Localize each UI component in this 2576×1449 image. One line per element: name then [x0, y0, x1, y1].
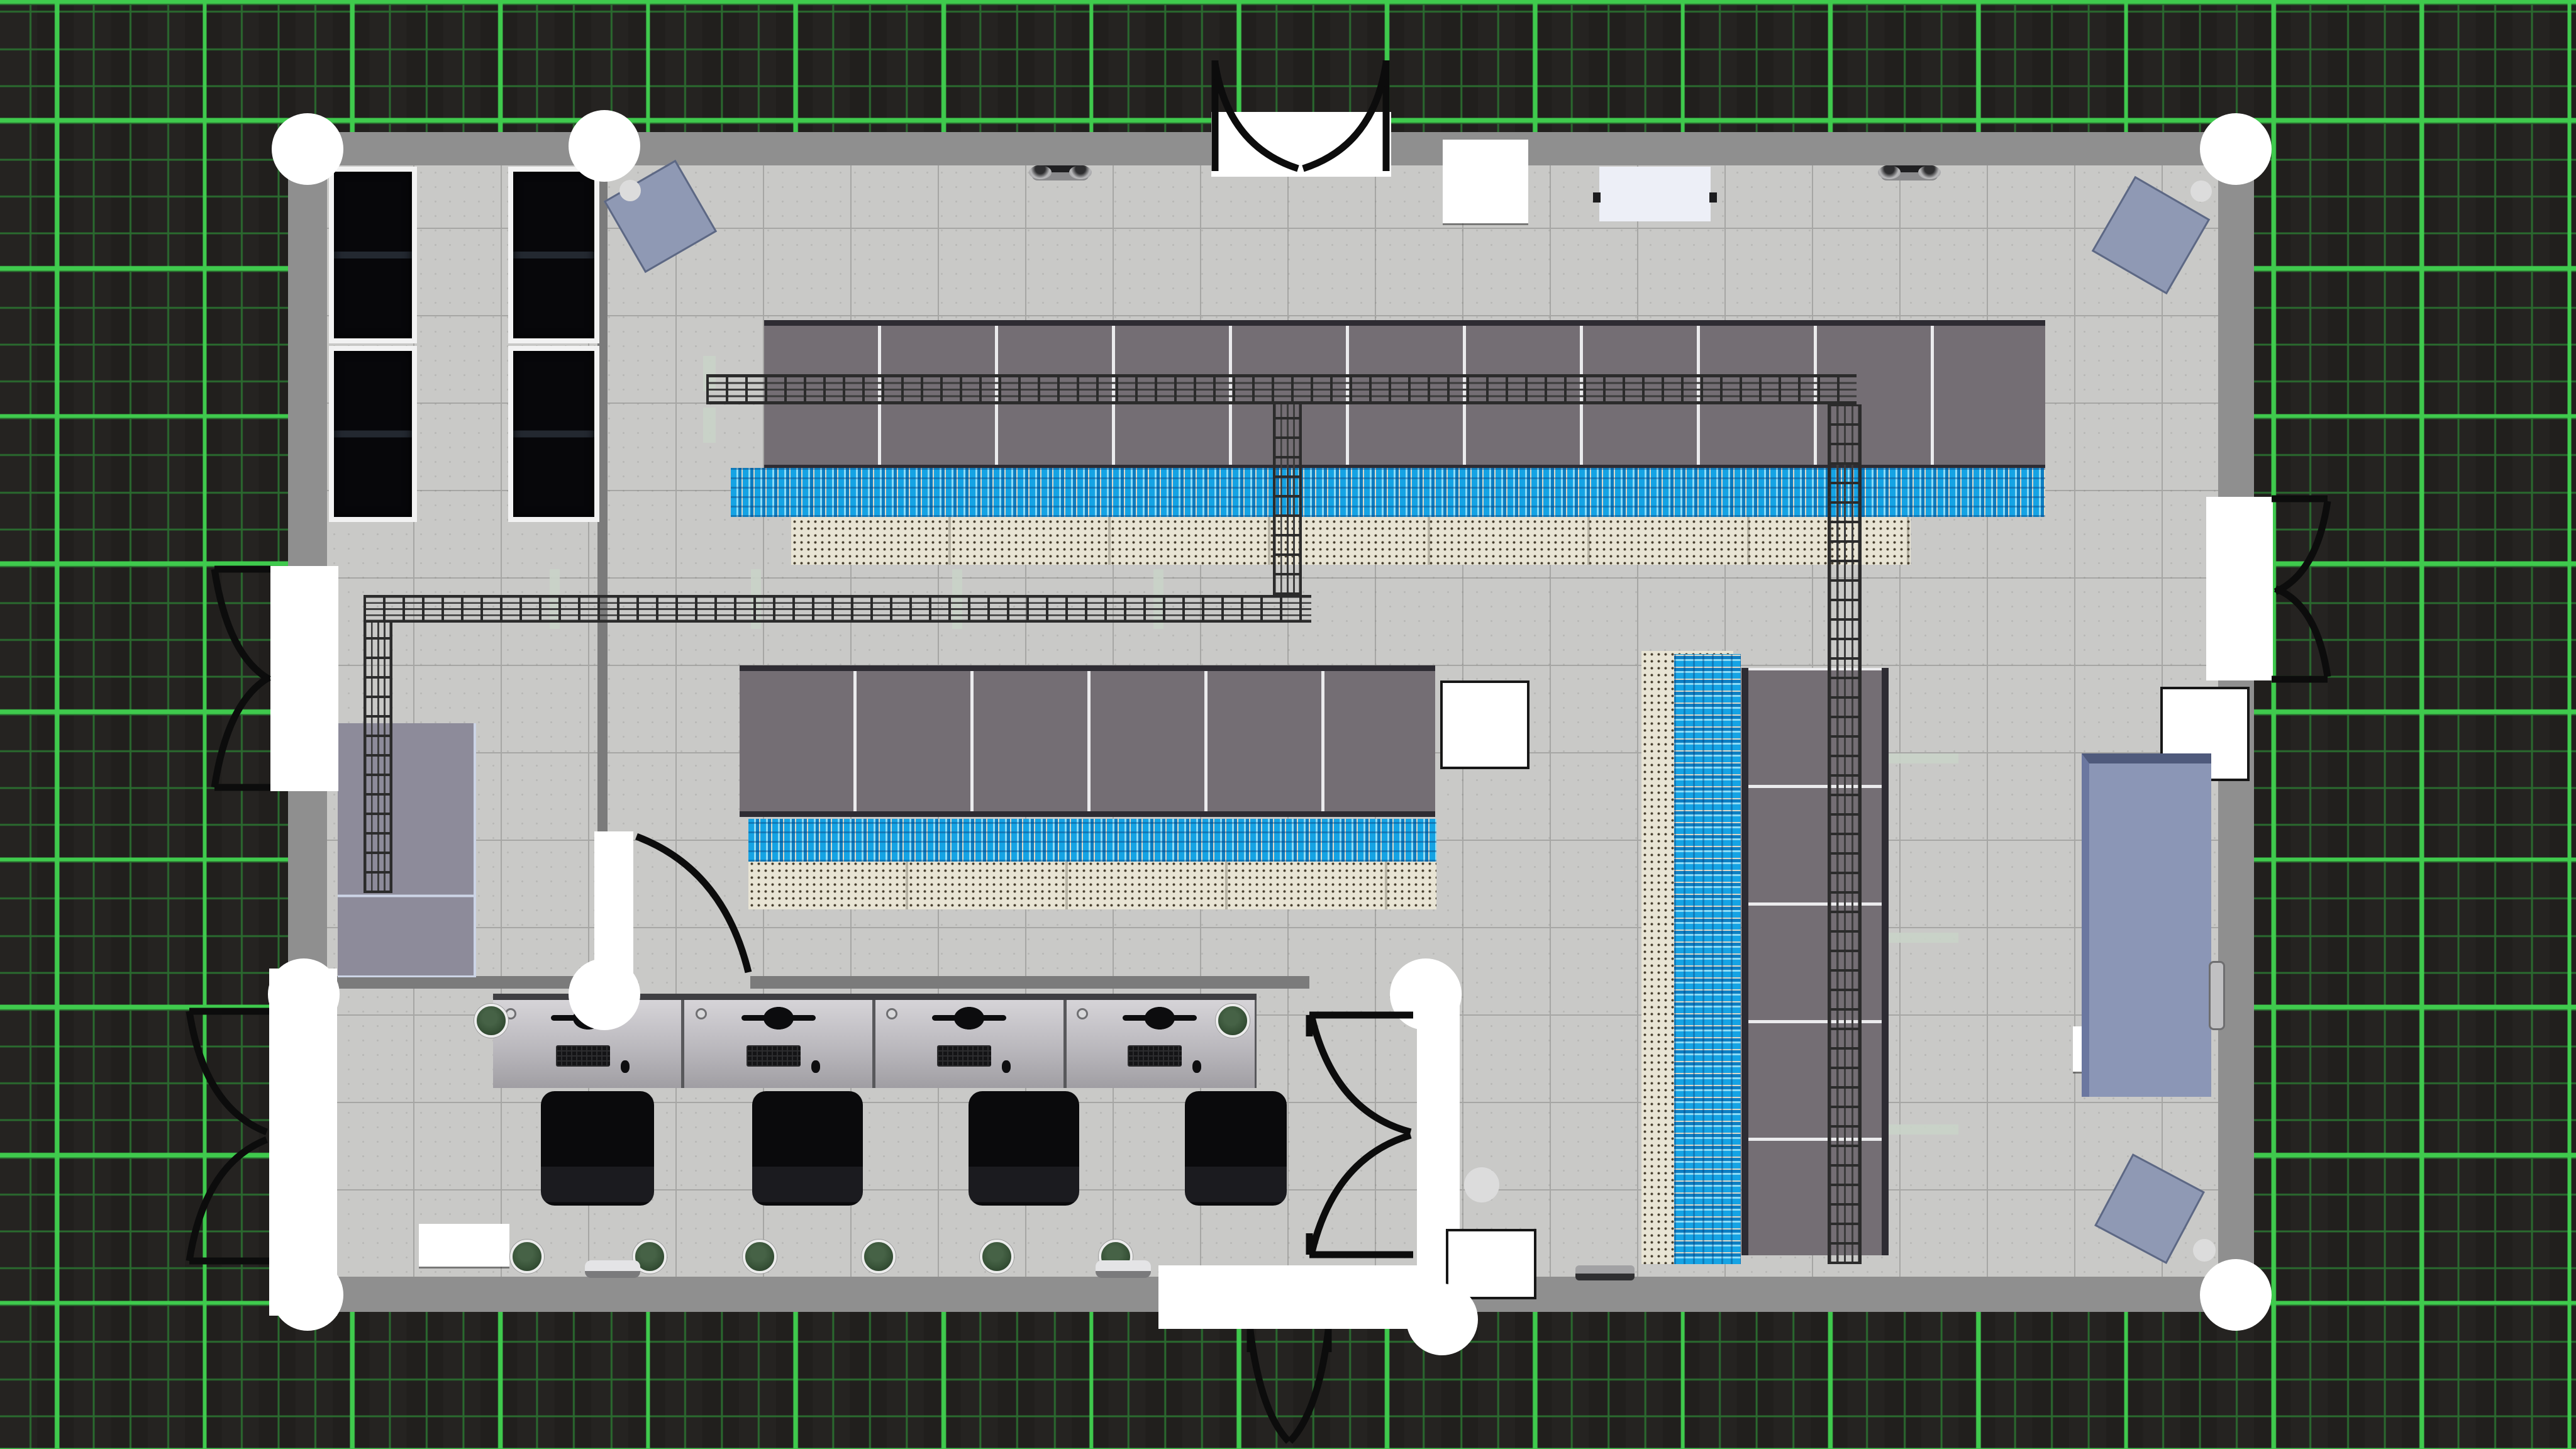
floorplan-canvas [0, 0, 2576, 1449]
keyboard[interactable] [747, 1045, 801, 1067]
floor-marker-circle [619, 180, 641, 201]
office-chair[interactable] [1185, 1091, 1287, 1206]
conveyor-end-pad [703, 408, 716, 443]
partition-door-leaf[interactable] [594, 831, 633, 979]
monitor-top-view[interactable] [741, 1005, 816, 1033]
server-rack-unit[interactable] [508, 167, 599, 343]
partition-wall-horizontal-west [327, 976, 609, 989]
door-threshold-left-upper [270, 566, 338, 791]
mouse[interactable] [1002, 1060, 1011, 1073]
work-table-row-middle[interactable] [740, 665, 1435, 817]
wall-screen-panel[interactable] [1599, 167, 1711, 221]
office-chair[interactable] [969, 1091, 1079, 1206]
floor-console[interactable] [1575, 1265, 1635, 1280]
keyboard[interactable] [556, 1045, 610, 1067]
conveyor-branch-left[interactable] [364, 623, 392, 893]
keyboard[interactable] [1128, 1045, 1182, 1067]
conveyor-line-second[interactable] [364, 595, 1311, 623]
floor-mat-bottom-left[interactable] [419, 1224, 509, 1267]
control-desk-handle [2209, 961, 2225, 1030]
office-chair[interactable] [752, 1091, 863, 1206]
potted-plant[interactable] [743, 1240, 777, 1274]
control-desk-right[interactable] [2082, 753, 2211, 1097]
blue-bin-strip-right[interactable] [1674, 654, 1741, 1264]
wall-mount-device [1880, 165, 1938, 180]
wall-mount-device [1031, 165, 1089, 180]
door-threshold-top [1211, 112, 1391, 177]
potted-plant[interactable] [862, 1240, 896, 1274]
monitor-top-view[interactable] [1123, 1005, 1197, 1033]
structural-column [2200, 1259, 2272, 1331]
structural-column [1406, 1284, 1478, 1355]
mouse[interactable] [811, 1060, 820, 1073]
server-rack-unit[interactable] [508, 346, 599, 522]
conveyor-branch-center[interactable] [1273, 404, 1302, 595]
work-table-column-right[interactable] [1741, 668, 1889, 1255]
conveyor-line-top[interactable] [706, 374, 1857, 404]
vestibule-white-floor [1158, 1265, 1446, 1329]
potted-plant[interactable] [474, 1004, 508, 1038]
monitor-top-view[interactable] [932, 1005, 1006, 1033]
floor-console[interactable] [1096, 1260, 1151, 1278]
structural-column [1390, 958, 1462, 1030]
floor-marker-circle [2190, 180, 2212, 202]
grate-tray-rack-middle[interactable] [748, 860, 1436, 909]
conveyor-line-right[interactable] [1828, 404, 1862, 1264]
structural-column [2200, 113, 2272, 185]
counter-hinge-knob [886, 1008, 897, 1019]
equipment-box-top-wall[interactable] [1443, 140, 1528, 223]
potted-plant[interactable] [510, 1240, 544, 1274]
mouse[interactable] [621, 1060, 630, 1073]
door-left-upper-exterior[interactable] [214, 569, 270, 787]
equipment-box-middle[interactable] [1440, 680, 1529, 769]
floor-console[interactable] [585, 1260, 640, 1278]
storage-cabinet[interactable] [338, 723, 476, 977]
floor-marker-circle [2193, 1239, 2216, 1262]
partition-wall-horizontal-east [750, 976, 1309, 989]
door-right-exterior[interactable] [2272, 499, 2328, 679]
door-left-lower-exterior[interactable] [189, 1011, 269, 1261]
keyboard[interactable] [937, 1045, 991, 1067]
structural-column [569, 958, 640, 1030]
blue-bin-strip-middle[interactable] [748, 819, 1436, 862]
floor-marker-circle [1464, 1167, 1499, 1202]
counter-hinge-knob [1077, 1008, 1088, 1019]
door-threshold-right [2206, 497, 2273, 680]
structural-column [268, 958, 340, 1030]
structural-column [272, 113, 343, 185]
door-bottom-exterior[interactable] [1250, 1329, 1328, 1441]
structural-column [272, 1259, 343, 1331]
counter-hinge-knob [696, 1008, 707, 1019]
potted-plant[interactable] [980, 1240, 1014, 1274]
structural-column [569, 110, 640, 182]
office-chair[interactable] [541, 1091, 654, 1206]
potted-plant[interactable] [1216, 1004, 1250, 1038]
server-rack-unit[interactable] [329, 346, 417, 522]
server-rack-unit[interactable] [329, 167, 417, 343]
mouse[interactable] [1192, 1060, 1201, 1073]
